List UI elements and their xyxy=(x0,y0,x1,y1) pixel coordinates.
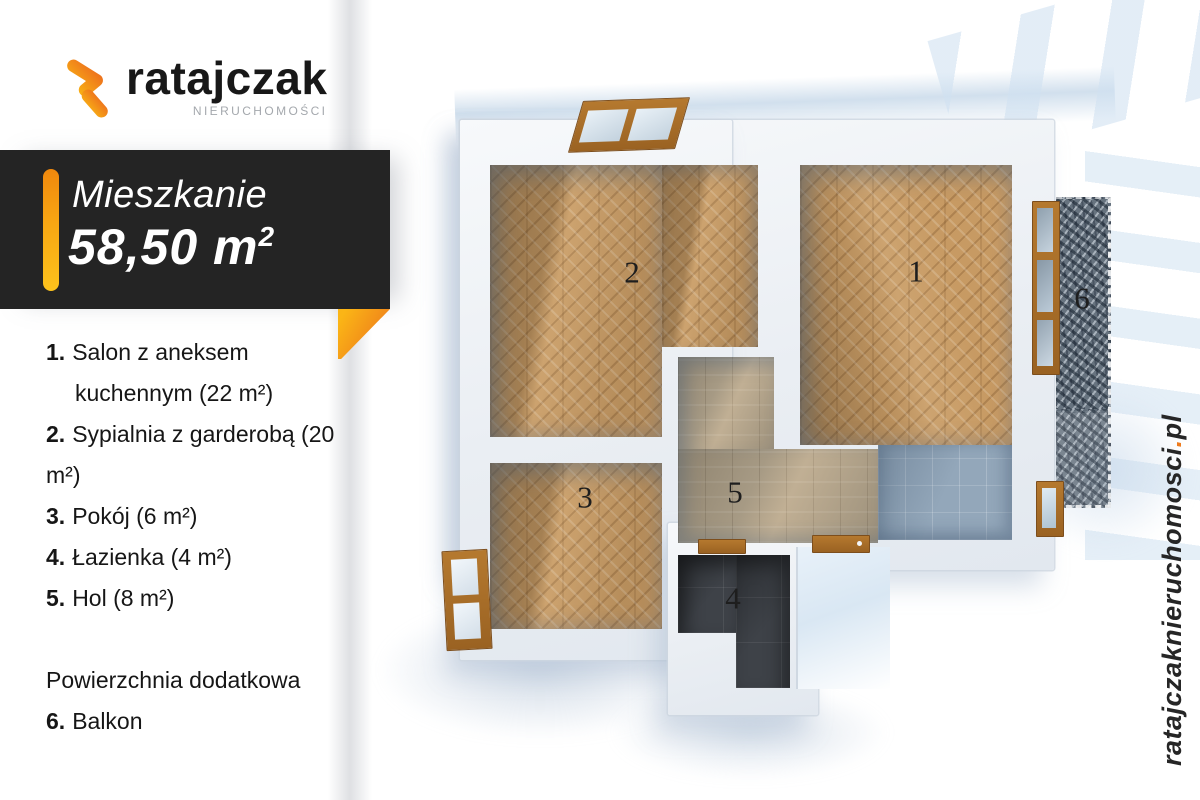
hall-floor xyxy=(678,449,878,543)
room-3-window-pane xyxy=(453,602,481,639)
website-url-tld: pl xyxy=(1157,414,1187,439)
legend-item-4: 4.Łazienka (4 m²) xyxy=(46,537,346,578)
entrance-door-handle xyxy=(857,541,862,546)
logo-r-icon xyxy=(58,52,116,133)
balcony-door-pane xyxy=(1037,260,1053,312)
kitchen-window-pane xyxy=(1042,488,1056,528)
title-banner: Mieszkanie 58,50 m2 xyxy=(0,150,390,309)
legend-item-6: 6.Balkon xyxy=(46,701,346,742)
legend-extra-heading: Powierzchnia dodatkowa xyxy=(46,660,346,701)
legend-item-1: 1.Salon z aneksem xyxy=(46,332,346,373)
room-1-salon-floor xyxy=(800,165,1012,445)
balcony-floor-lower xyxy=(1056,409,1111,508)
room-label-6: 6 xyxy=(1074,283,1090,314)
listing-area-sup: 2 xyxy=(258,221,275,252)
kitchen-annex-tiles xyxy=(878,445,1012,540)
logo-subtitle: NIERUCHOMOŚCI xyxy=(193,104,328,118)
website-url: ratajczaknieruchomosci.pl xyxy=(1157,414,1188,766)
room-legend: 1.Salon z aneksem kuchennym (22 m²) 2.Sy… xyxy=(46,332,346,742)
bathroom-door-threshold xyxy=(698,539,746,554)
room-3-window xyxy=(441,549,492,651)
hall-corridor-floor xyxy=(678,357,774,451)
room-label-1: 1 xyxy=(908,256,924,287)
floorplan: 1 2 3 4 5 6 xyxy=(440,95,1140,795)
banner-accent-bar xyxy=(43,169,59,291)
room-2-wardrobe-floor xyxy=(662,165,758,347)
kitchen-window xyxy=(1036,481,1064,537)
room-3-floor xyxy=(490,463,662,629)
website-url-name: ratajczaknieruchomosci xyxy=(1157,447,1187,766)
room-label-5: 5 xyxy=(727,477,743,508)
bedroom-window-pane xyxy=(627,108,677,141)
legend-item-1-line2: kuchennym (22 m²) xyxy=(46,373,346,414)
balcony-door-pane xyxy=(1037,320,1053,366)
legend-item-2: 2.Sypialnia z garderobą (20 m²) xyxy=(46,414,346,496)
bedroom-window-pane xyxy=(579,109,629,142)
entry-landing xyxy=(796,547,890,689)
bathroom-floor-right xyxy=(736,555,790,688)
room-label-2: 2 xyxy=(624,257,640,288)
legend-item-5: 5.Hol (8 m²) xyxy=(46,578,346,619)
balcony-door xyxy=(1032,201,1060,375)
balcony-door-pane xyxy=(1037,208,1053,252)
room-2-bedroom-floor xyxy=(490,165,662,437)
bedroom-window xyxy=(568,97,690,153)
legend-item-3: 3.Pokój (6 m²) xyxy=(46,496,346,537)
entrance-door xyxy=(812,535,870,553)
logo-wordmark: ratajczak xyxy=(126,52,327,104)
room-label-4: 4 xyxy=(725,583,741,614)
room-3-window-pane xyxy=(451,558,479,595)
logo: ratajczak NIERUCHOMOŚCI xyxy=(58,52,327,133)
room-label-3: 3 xyxy=(577,482,593,513)
listing-type: Mieszkanie xyxy=(72,174,267,217)
website-url-dot: . xyxy=(1157,439,1187,447)
listing-area-value: 58,50 m xyxy=(68,219,258,275)
listing-area: 58,50 m2 xyxy=(68,218,275,276)
